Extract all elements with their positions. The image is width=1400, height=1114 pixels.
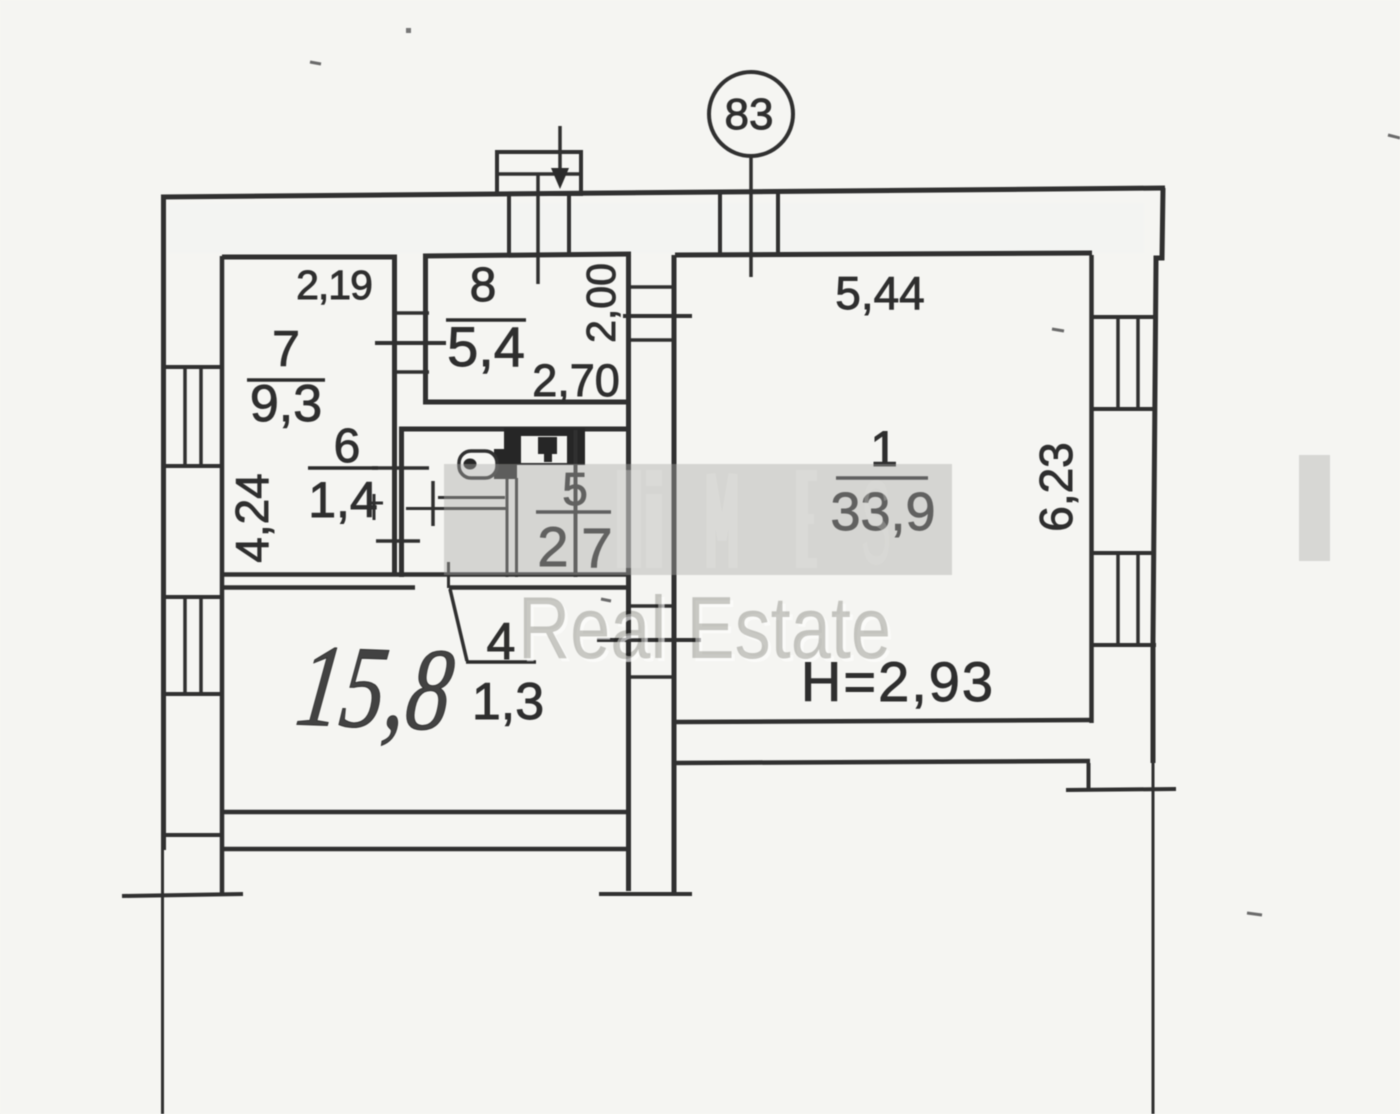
svg-text:5,44: 5,44 [835,267,925,319]
svg-text:5,4: 5,4 [447,315,525,378]
svg-text:83: 83 [725,90,774,139]
svg-text:15,8: 15,8 [290,619,461,755]
svg-text:6,23: 6,23 [1030,442,1082,532]
svg-text:1,3: 1,3 [472,673,544,731]
svg-text:9,3: 9,3 [250,375,322,433]
svg-text:8: 8 [470,259,497,312]
svg-text:2,70: 2,70 [532,355,620,406]
svg-text:6: 6 [334,420,361,473]
svg-text:2,19: 2,19 [296,262,372,308]
svg-text:Real Estate: Real Estate [518,579,891,677]
svg-text:1,4: 1,4 [308,472,378,528]
svg-text:2,00: 2,00 [578,263,624,343]
svg-text:4,24: 4,24 [226,473,278,563]
svg-text:7: 7 [272,321,300,377]
svg-text:S: S [861,457,891,591]
